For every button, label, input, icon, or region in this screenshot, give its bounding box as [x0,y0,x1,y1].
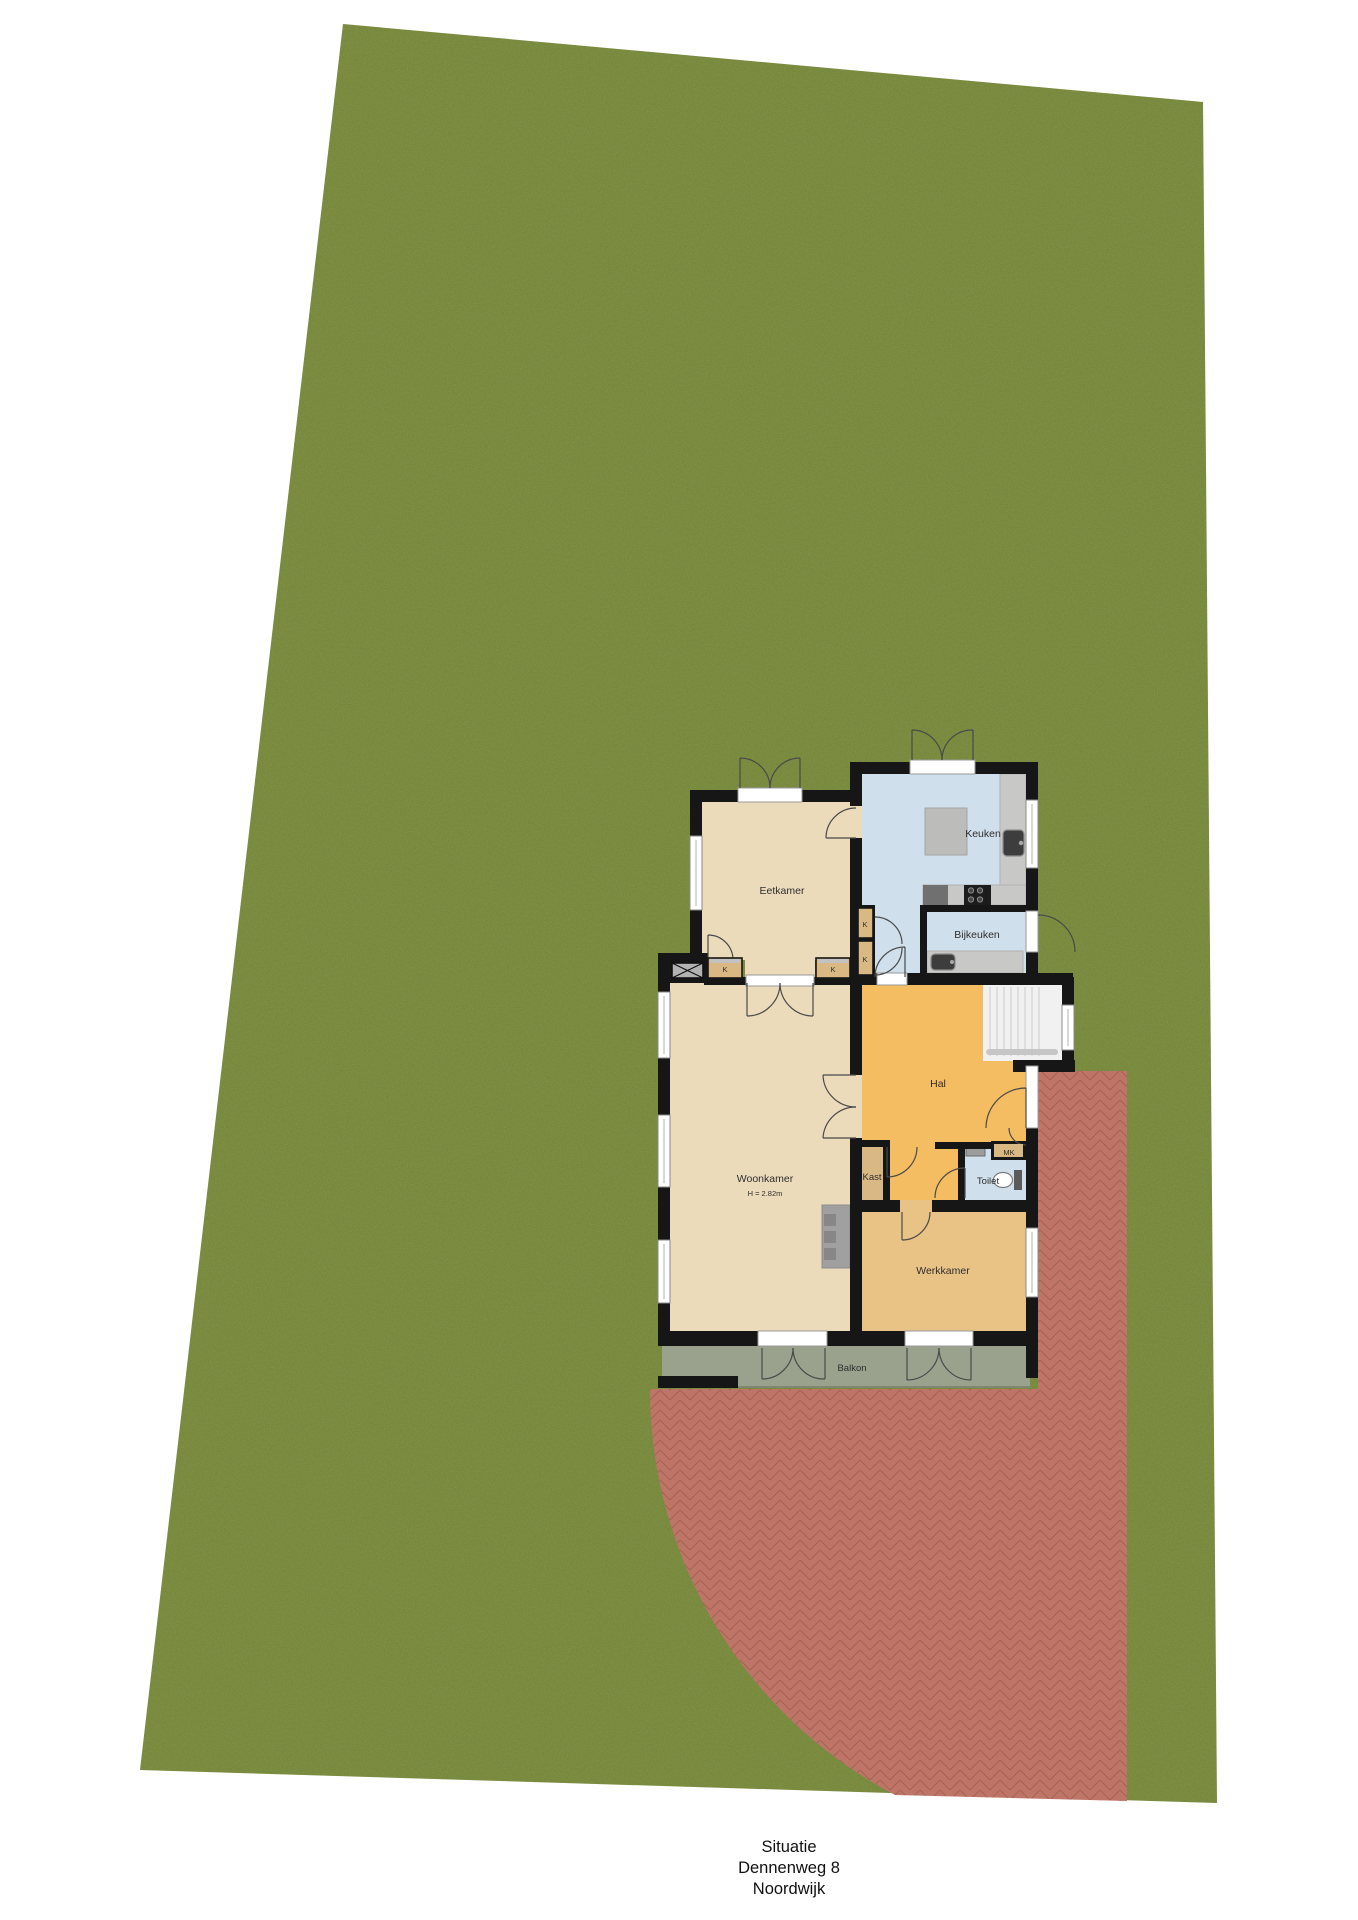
label-closet-k: K [722,965,727,974]
wall [958,1145,965,1202]
label-eetkamer: Eetkamer [760,885,805,897]
label-closet-k: K [862,920,867,929]
kitchen-faucet [1019,841,1023,845]
page: Eetkamer Keuken Bijkeuken Hal Woonkamer … [0,0,1358,1920]
site-plan: Eetkamer Keuken Bijkeuken Hal Woonkamer … [0,0,1358,1920]
wall [658,1376,738,1388]
label-bijkeuken: Bijkeuken [954,929,1000,941]
stair-handrail [986,1049,1058,1055]
door-sill [1026,1066,1038,1128]
label-closet-k: K [830,965,835,974]
fireplace-block [824,1248,836,1260]
wall [1026,1346,1038,1378]
bijkeuken-fixtures [927,951,1023,973]
closet-sill [818,959,848,963]
door-gap [850,806,862,838]
wall [850,1200,1038,1212]
wall [850,985,862,1075]
door-sill [1026,911,1038,952]
wall [920,905,927,975]
kitchen-island [925,808,967,855]
label-toilet: Toilet [977,1176,1000,1187]
fireplace-block [824,1231,836,1243]
label-woonkamer-height: H = 2.82m [748,1189,783,1198]
stove [964,885,991,905]
toilet-tank [1014,1170,1022,1190]
wall [658,1331,1038,1346]
caption-title: Situatie [761,1838,816,1856]
fireplace [822,1205,850,1268]
bijkeuken-faucet [950,960,954,964]
fireplace-block [824,1214,836,1226]
label-closet-k: K [862,955,867,964]
door-sill [905,1331,973,1346]
label-werkkamer: Werkkamer [916,1265,970,1277]
caption: Situatie Dennenweg 8 Noordwijk [738,1838,840,1898]
room-woonkamer [664,983,856,1333]
label-woonkamer: Woonkamer [737,1173,794,1185]
caption-city: Noordwijk [753,1880,826,1898]
closet-sill [710,959,740,963]
label-balkon: Balkon [837,1363,866,1374]
chimney-hatch [672,963,703,978]
label-kast: Kast [862,1172,881,1183]
door-sill [758,1331,827,1346]
label-keuken: Keuken [965,828,1001,840]
label-hal: Hal [930,1078,946,1090]
stairs [983,985,1062,1061]
kitchen-cabinet [923,885,948,905]
door-sill [910,760,975,774]
door-sill [738,788,802,802]
wall [1013,1060,1075,1072]
label-mk: MK [1003,1148,1014,1157]
door-gap [900,1200,932,1212]
caption-street: Dennenweg 8 [738,1859,840,1877]
wall [850,1138,862,1346]
wall [920,905,1026,912]
